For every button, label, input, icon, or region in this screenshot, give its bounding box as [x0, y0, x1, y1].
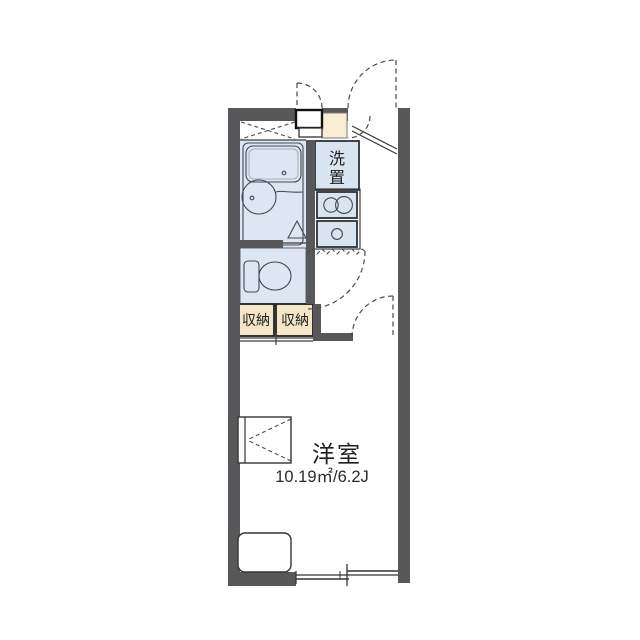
- genkan-tile: [322, 113, 347, 138]
- wall-hall-room: [313, 333, 353, 341]
- wall-right: [398, 108, 410, 583]
- wall-bath-toilet: [240, 240, 283, 248]
- bed: [238, 533, 291, 572]
- wall-toilet-hall: [306, 248, 315, 304]
- wall-top-left-segment: [228, 108, 296, 121]
- stove: [317, 192, 357, 218]
- meter-box-door-arc: [297, 83, 322, 108]
- wall-bath-kitchen: [306, 140, 315, 250]
- shoe-box-lip: [299, 128, 322, 137]
- shoe-box: [296, 110, 322, 128]
- entrance-door-arc: [348, 60, 396, 108]
- wall-bottom-left-segment: [228, 572, 296, 586]
- toilet-floor: [240, 248, 306, 304]
- room-name-label: 洋室: [312, 441, 362, 467]
- casement-window-box: [238, 417, 291, 463]
- toilet-door-arc: [307, 251, 365, 309]
- storage-left-label: 収納: [242, 312, 270, 328]
- storage-right-label: 収納: [281, 312, 309, 328]
- room-area-label: 10.19㎡/6.2J: [275, 467, 369, 486]
- laundry-label-top: 洗: [329, 150, 345, 168]
- wall-left: [228, 108, 240, 586]
- floor-plan: 洗 置 収納 収納 洋室 10.19㎡/6.2J: [0, 0, 640, 640]
- kitchen-boundary-zigzag: [307, 249, 366, 254]
- bathroom-floor: [240, 140, 306, 248]
- room-door-arc: [352, 296, 393, 337]
- floor-plan-canvas: 洗 置 収納 収納 洋室 10.19㎡/6.2J: [0, 0, 640, 640]
- laundry-label-bottom: 置: [329, 170, 345, 187]
- kitchen-sink: [317, 221, 357, 247]
